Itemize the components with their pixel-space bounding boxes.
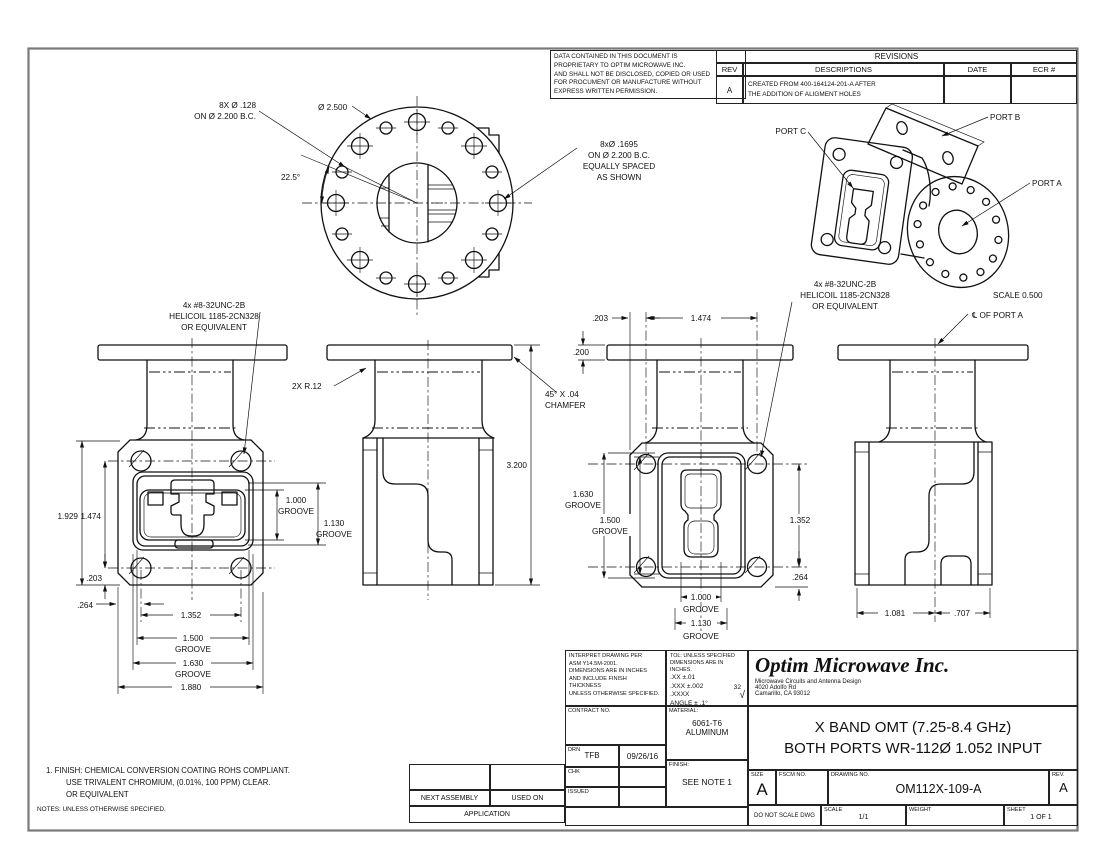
rev-ecr [1011,76,1077,104]
application-label: APPLICATION [409,806,565,823]
svg-text:HELICOIL 1185-2CN328: HELICOIL 1185-2CN328 [800,291,890,300]
drawing-number: OM112X-109-A [829,782,1048,796]
issued-cell: ISSUED [565,787,619,807]
front-view-port-c: 1.929 1.474 .203 .264 1.352 1.500 GROOVE… [58,301,353,694]
svg-text:GROOVE: GROOVE [175,670,211,679]
col-rev: REV [716,63,743,76]
dim-1929: 1.929 [58,512,79,521]
rev-description: CREATED FROM 400-164124-201-A AFTER THE … [743,76,944,104]
port-b-plate [868,108,978,184]
scale-cell: SCALE 1/1 [821,805,906,826]
isometric-view: PORT C PORT B PORT A SCALE 0.500 [775,104,1062,301]
sheet-cell: SHEET 1 OF 1 [1004,805,1078,826]
drawing-no-cell: DRAWING NO. OM112X-109-A [828,770,1049,805]
svg-text:1.630: 1.630 [573,490,594,499]
col-ecr: ECR # [1011,63,1077,76]
finish-note-line2: USE TRIVALENT CHROMIUM, (0.01%, 100 PPM)… [66,778,271,787]
svg-text:GROOVE: GROOVE [565,501,601,510]
finish-note-line3: OR EQUIVALENT [66,790,129,799]
small-holes-callout: 8X Ø .128 [219,101,256,110]
interpret-cell: INTERPRET DRAWING PER ASM Y14.5M-2001. D… [565,650,666,706]
svg-text:GROOVE: GROOVE [278,507,314,516]
contract-cell: CONTRACT NO. [565,706,666,745]
drawing-sheet: Ø 2.500 8X Ø .128 ON Ø 2.200 B.C. 22.5° … [0,0,1100,850]
revisions-title: REVISIONS [716,50,1077,63]
svg-text:.203: .203 [592,314,608,323]
application-table: NEXT ASSEMBLY USED ON APPLICATION [409,764,565,823]
dim-3200: 3.200 [507,461,528,470]
svg-text:1.130: 1.130 [324,519,345,528]
centerline-note: ℄ OF PORT A [971,311,1023,320]
svg-text:GROOVE: GROOVE [316,530,352,539]
svg-text:1.000: 1.000 [286,496,307,505]
svg-text:.264: .264 [792,573,808,582]
svg-text:.707: .707 [954,609,970,618]
side-view-b: 1.081 .707 ℄ OF PORT A [838,311,1028,622]
svg-text:.200: .200 [573,348,589,357]
port-a-label: PORT A [1032,179,1062,188]
svg-text:.264: .264 [77,601,93,610]
next-assembly-label: NEXT ASSEMBLY [409,790,490,806]
svg-text:1.352: 1.352 [181,611,202,620]
svg-text:ON Ø 2.200 B.C.: ON Ø 2.200 B.C. [588,151,650,160]
notes-footer: NOTES: UNLESS OTHERWISE SPECIFIED. [37,806,166,813]
material-cell: MATERIAL: 6061-T6 ALUMINUM [666,706,748,760]
svg-text:GROOVE: GROOVE [175,645,211,654]
dia-2500-label: Ø 2.500 [318,103,348,112]
svg-text:1.880: 1.880 [181,683,202,692]
rev-value: A [716,76,743,104]
col-date: DATE [944,63,1011,76]
chamfer-callout: 45° X .04 [545,390,579,399]
finish-cell: FINISH: SEE NOTE 1 [666,760,748,807]
front-view-port-b: .203 1.474 .200 1.630 GROOVE 1.500 GROOV… [565,280,890,641]
used-on-label: USED ON [490,790,565,806]
svg-text:CHAMFER: CHAMFER [545,401,586,410]
finish-note-line1: 1. FINISH: CHEMICAL CONVERSION COATING R… [46,766,290,775]
weight-cell: WEIGHT [906,805,1004,826]
tolerance-cell: TOL: UNLESS SPECIFIED DIMENSIONS ARE IN … [666,650,748,706]
svg-text:1.630: 1.630 [183,659,204,668]
chk-cell: CHK [565,767,619,787]
helicoil-callout-right: 4x #8-32UNC-2B [814,280,877,289]
svg-text:1.474: 1.474 [691,314,712,323]
svg-text:1.474: 1.474 [81,512,102,521]
title-block: INTERPRET DRAWING PER ASM Y14.5M-2001. D… [565,650,1078,826]
company-cell: Optim Microwave Inc. Microwave Circuits … [748,650,1078,706]
svg-text:1.352: 1.352 [790,516,811,525]
scale-note: SCALE 0.500 [993,291,1043,300]
svg-text:EQUALLY SPACED: EQUALLY SPACED [583,162,655,171]
svg-text:1.130: 1.130 [691,619,712,628]
drn-cell: DRN TFB [565,745,619,767]
port-b-label: PORT B [990,113,1021,122]
svg-text:1.081: 1.081 [885,609,906,618]
svg-text:AS SHOWN: AS SHOWN [597,173,642,182]
svg-text:OR EQUIVALENT: OR EQUIVALENT [812,302,878,311]
large-holes-callout: 8xØ .1695 [600,140,638,149]
rev-cell: REV. A [1049,770,1078,805]
svg-text:ON Ø 2.200 B.C.: ON Ø 2.200 B.C. [194,112,256,121]
helicoil-callout-left: 4x #8-32UNC-2B [183,301,246,310]
svg-text:GROOVE: GROOVE [683,605,719,614]
fscm-cell: FSCM NO. [776,770,828,805]
port-c-label: PORT C [775,127,806,136]
rev-date [944,76,1011,104]
svg-text:1.500: 1.500 [183,634,204,643]
radius-callout: 2X R.12 [292,382,322,391]
svg-text:.203: .203 [86,574,102,583]
drawing-title: X BAND OMT (7.25-8.4 GHz) BOTH PORTS WR-… [748,706,1078,770]
col-descriptions: DESCRIPTIONS [743,63,944,76]
svg-text:1.000: 1.000 [691,593,712,602]
company-name: Optim Microwave Inc. [755,653,1071,678]
svg-text:1.500: 1.500 [600,516,621,525]
port-c-flange [810,136,914,265]
side-view-a: 3.200 2X R.12 45° X .04 CHAMFER [292,340,586,600]
round-flange-view: Ø 2.500 8X Ø .128 ON Ø 2.200 B.C. 22.5° … [194,96,655,316]
angle-label: 22.5° [281,173,300,182]
port-a-flange [893,163,1023,300]
drn-date-cell: 09/26/16 [619,745,666,767]
surface-finish-icon: √ [740,689,746,702]
svg-text:HELICOIL 1185-2CN328: HELICOIL 1185-2CN328 [169,312,259,321]
size-cell: SIZE A [748,770,776,805]
svg-text:OR EQUIVALENT: OR EQUIVALENT [181,323,247,332]
svg-text:GROOVE: GROOVE [592,527,628,536]
dia-leader [352,106,371,119]
revisions-table: REVISIONS REV DESCRIPTIONS DATE ECR # A … [716,50,1077,104]
svg-text:GROOVE: GROOVE [683,632,719,641]
do-not-scale: DO NOT SCALE DWG [748,805,821,826]
